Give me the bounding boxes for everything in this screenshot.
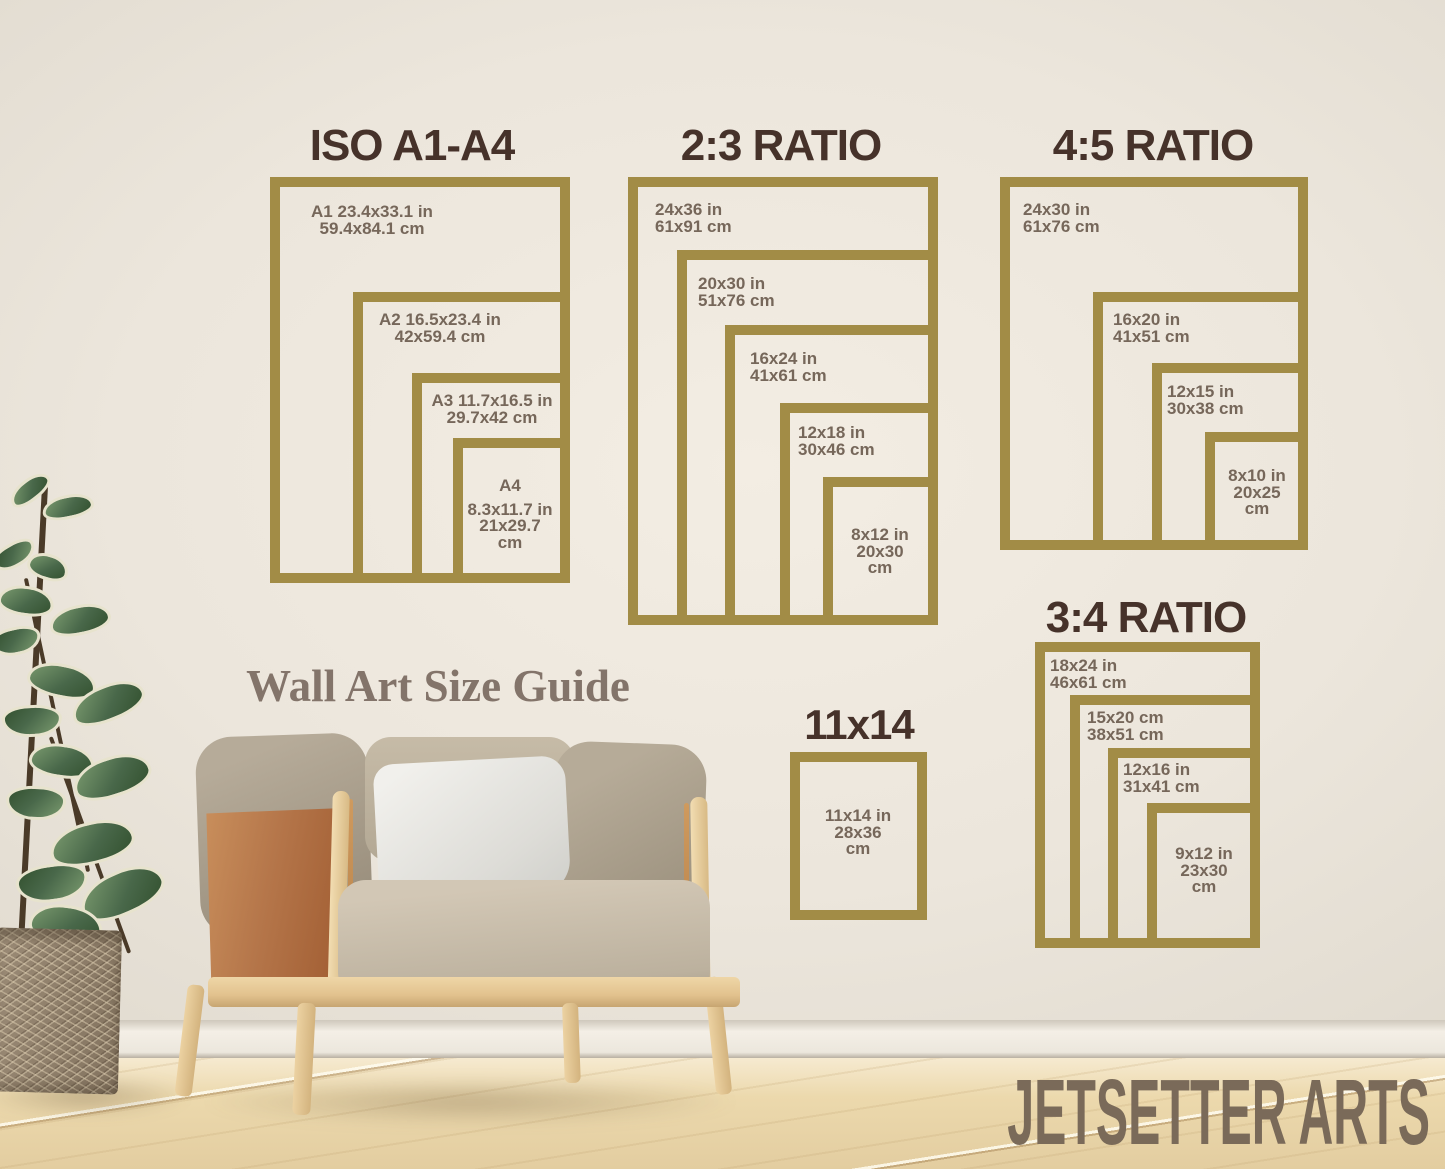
- frame-label-16x24: 16x24 in41x61 cm: [750, 351, 827, 384]
- frame-label-8x10: 8x10 in 20x25 cm: [1157, 468, 1357, 518]
- frame-label-a4: A4 8.3x11.7 in 21x29.7 cm: [410, 478, 610, 551]
- frame-label-24x30: 24x30 in61x76 cm: [1023, 202, 1100, 235]
- watermark-title: Wall Art Size Guide: [238, 664, 638, 709]
- frame-label-12x15: 12x15 in30x38 cm: [1167, 384, 1244, 417]
- frame-label-a1: A1 23.4x33.1 in59.4x84.1 cm: [272, 204, 472, 237]
- frame-label-16x20: 16x20 in41x51 cm: [1113, 312, 1190, 345]
- group-title-11x14: 11x14: [759, 704, 959, 746]
- frame-label-12x16: 12x16 in31x41 cm: [1123, 762, 1200, 795]
- frame-label-24x36: 24x36 in61x91 cm: [655, 202, 732, 235]
- frame-label-12x18: 12x18 in30x46 cm: [798, 425, 875, 458]
- group-title-3-4: 3:4 RATIO: [996, 596, 1296, 640]
- frame-label-18x24: 18x24 in46x61 cm: [1050, 658, 1127, 691]
- wall-art-size-guide-mockup: ISO A1-A4 A1 23.4x33.1 in59.4x84.1 cm A2…: [0, 0, 1445, 1169]
- frame-label-9x12: 9x12 in 23x30 cm: [1104, 846, 1304, 896]
- chair-rail: [208, 977, 740, 1007]
- armchair: [180, 715, 765, 1145]
- group-title-2-3: 2:3 RATIO: [631, 124, 931, 168]
- frame-label-a3: A3 11.7x16.5 in29.7x42 cm: [392, 393, 592, 426]
- frame-label-a2: A2 16.5x23.4 in42x59.4 cm: [340, 312, 540, 345]
- leather-side-panel: [200, 806, 345, 1000]
- group-title-4-5: 4:5 RATIO: [1003, 124, 1303, 168]
- frame-label-11x14: 11x14 in 28x36 cm: [758, 808, 958, 858]
- frame-label-8x12: 8x12 in 20x30 cm: [780, 527, 980, 577]
- chair-leg-front-left: [292, 1003, 316, 1116]
- planter-basket: [0, 927, 122, 1094]
- group-title-iso: ISO A1-A4: [262, 124, 562, 168]
- brand-logo-text: JETSETTER ARTS: [1007, 1078, 1430, 1146]
- frame-label-15x20: 15x20 cm38x51 cm: [1087, 710, 1164, 743]
- chair-leg-front-right: [562, 1003, 581, 1084]
- frame-label-20x30: 20x30 in51x76 cm: [698, 276, 775, 309]
